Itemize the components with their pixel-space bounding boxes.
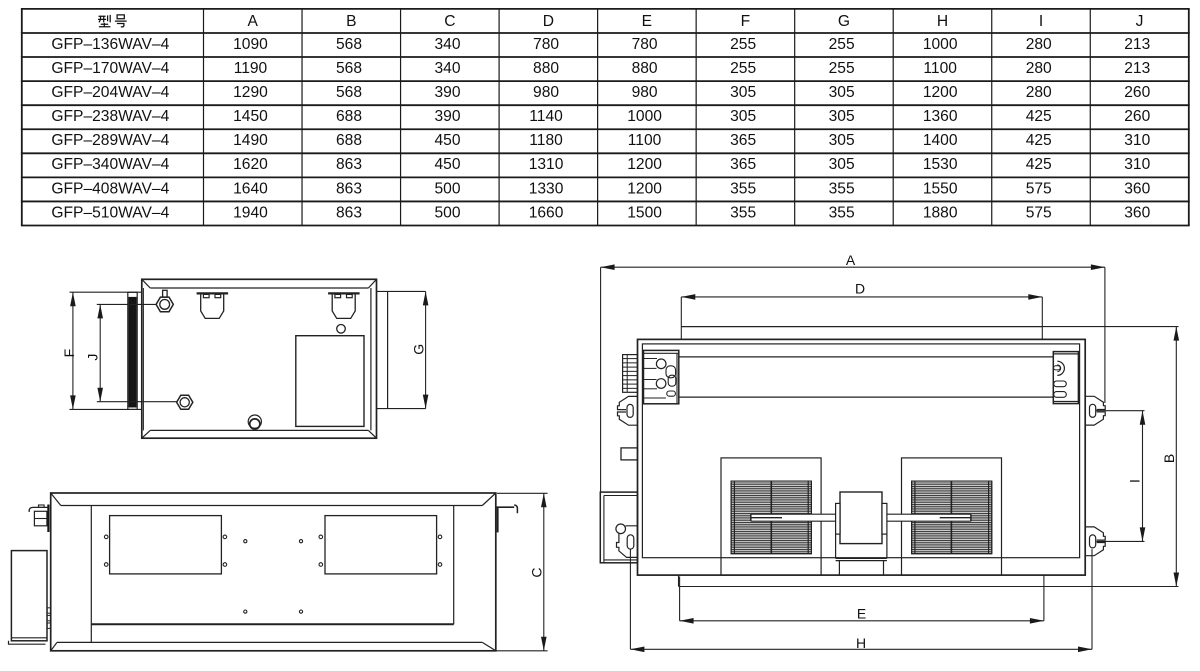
- svg-text:F: F: [61, 349, 77, 358]
- svg-text:1620: 1620: [233, 156, 268, 173]
- svg-text:H: H: [937, 13, 948, 30]
- svg-text:980: 980: [632, 84, 658, 101]
- svg-text:A: A: [846, 252, 856, 268]
- svg-text:863: 863: [336, 204, 362, 221]
- svg-text:1400: 1400: [923, 132, 958, 149]
- svg-text:280: 280: [1026, 60, 1052, 77]
- svg-text:G: G: [411, 344, 427, 355]
- svg-text:J: J: [84, 354, 100, 361]
- svg-text:575: 575: [1026, 204, 1052, 221]
- svg-text:1330: 1330: [529, 180, 564, 197]
- svg-text:1180: 1180: [529, 132, 563, 149]
- svg-text:B: B: [346, 13, 356, 30]
- svg-text:I: I: [1039, 13, 1043, 30]
- svg-text:1550: 1550: [923, 180, 958, 197]
- svg-text:1190: 1190: [234, 60, 268, 77]
- svg-text:1200: 1200: [627, 180, 662, 197]
- svg-text:J: J: [1136, 13, 1144, 30]
- svg-text:I: I: [1127, 479, 1143, 483]
- svg-text:E: E: [857, 606, 866, 622]
- svg-text:GFP–204WAV–4: GFP–204WAV–4: [51, 84, 169, 101]
- svg-text:260: 260: [1124, 84, 1150, 101]
- svg-text:305: 305: [730, 84, 756, 101]
- svg-text:1200: 1200: [627, 156, 662, 173]
- svg-text:280: 280: [1026, 36, 1052, 53]
- svg-text:568: 568: [336, 36, 362, 53]
- svg-text:688: 688: [336, 108, 362, 125]
- svg-text:1450: 1450: [233, 108, 268, 125]
- svg-text:980: 980: [533, 84, 559, 101]
- svg-text:568: 568: [336, 60, 362, 77]
- svg-text:A: A: [248, 13, 259, 30]
- svg-text:213: 213: [1124, 60, 1150, 77]
- svg-text:863: 863: [336, 156, 362, 173]
- svg-text:425: 425: [1026, 132, 1052, 149]
- svg-text:1100: 1100: [923, 60, 957, 77]
- svg-text:305: 305: [829, 108, 855, 125]
- svg-text:1640: 1640: [233, 180, 268, 197]
- svg-text:1200: 1200: [923, 84, 958, 101]
- svg-text:450: 450: [435, 132, 461, 149]
- svg-text:1310: 1310: [529, 156, 564, 173]
- svg-text:305: 305: [829, 132, 855, 149]
- svg-text:1000: 1000: [627, 108, 662, 125]
- svg-text:305: 305: [730, 108, 756, 125]
- svg-text:340: 340: [435, 36, 461, 53]
- svg-text:1290: 1290: [233, 84, 268, 101]
- svg-text:F: F: [741, 13, 751, 30]
- svg-text:305: 305: [829, 156, 855, 173]
- svg-text:305: 305: [829, 84, 855, 101]
- svg-text:575: 575: [1026, 180, 1052, 197]
- svg-text:355: 355: [829, 204, 855, 221]
- svg-text:425: 425: [1026, 156, 1052, 173]
- svg-text:1140: 1140: [529, 108, 563, 125]
- svg-text:H: H: [856, 635, 866, 651]
- svg-text:688: 688: [336, 132, 362, 149]
- svg-text:365: 365: [730, 132, 756, 149]
- svg-text:GFP–170WAV–4: GFP–170WAV–4: [51, 60, 169, 77]
- svg-text:213: 213: [1124, 36, 1150, 53]
- svg-text:360: 360: [1124, 204, 1150, 221]
- svg-text:390: 390: [435, 108, 461, 125]
- svg-text:880: 880: [632, 60, 658, 77]
- svg-text:780: 780: [632, 36, 658, 53]
- svg-text:360: 360: [1124, 180, 1150, 197]
- svg-text:255: 255: [730, 36, 756, 53]
- svg-text:E: E: [642, 13, 652, 30]
- svg-text:1500: 1500: [627, 204, 662, 221]
- svg-text:GFP–340WAV–4: GFP–340WAV–4: [51, 156, 169, 173]
- svg-text:280: 280: [1026, 84, 1052, 101]
- svg-text:390: 390: [435, 84, 461, 101]
- svg-text:255: 255: [829, 60, 855, 77]
- svg-text:1090: 1090: [233, 36, 268, 53]
- svg-text:260: 260: [1124, 108, 1150, 125]
- svg-text:863: 863: [336, 180, 362, 197]
- svg-text:C: C: [444, 13, 455, 30]
- svg-text:255: 255: [730, 60, 756, 77]
- svg-text:310: 310: [1124, 132, 1150, 149]
- svg-text:GFP–238WAV–4: GFP–238WAV–4: [51, 108, 169, 125]
- svg-text:1530: 1530: [923, 156, 958, 173]
- svg-text:GFP–408WAV–4: GFP–408WAV–4: [51, 180, 169, 197]
- svg-text:310: 310: [1124, 156, 1150, 173]
- svg-text:365: 365: [730, 156, 756, 173]
- svg-text:1490: 1490: [233, 132, 268, 149]
- svg-text:568: 568: [336, 84, 362, 101]
- svg-text:355: 355: [730, 180, 756, 197]
- svg-text:1880: 1880: [923, 204, 958, 221]
- svg-text:500: 500: [435, 180, 461, 197]
- svg-text:450: 450: [435, 156, 461, 173]
- svg-text:780: 780: [533, 36, 559, 53]
- svg-text:425: 425: [1026, 108, 1052, 125]
- svg-text:355: 355: [730, 204, 756, 221]
- svg-text:D: D: [543, 13, 554, 30]
- svg-text:G: G: [838, 13, 850, 30]
- svg-text:355: 355: [829, 180, 855, 197]
- svg-text:1660: 1660: [529, 204, 564, 221]
- svg-text:1940: 1940: [233, 204, 268, 221]
- svg-text:GFP–136WAV–4: GFP–136WAV–4: [51, 36, 169, 53]
- svg-text:D: D: [855, 280, 865, 296]
- svg-text:1360: 1360: [923, 108, 958, 125]
- svg-text:1100: 1100: [628, 132, 662, 149]
- svg-text:880: 880: [533, 60, 559, 77]
- svg-text:C: C: [528, 567, 544, 577]
- svg-text:GFP–510WAV–4: GFP–510WAV–4: [51, 204, 169, 221]
- svg-text:340: 340: [435, 60, 461, 77]
- svg-text:B: B: [1161, 454, 1177, 463]
- svg-text:1000: 1000: [923, 36, 958, 53]
- svg-text:255: 255: [829, 36, 855, 53]
- svg-text:500: 500: [435, 204, 461, 221]
- svg-text:GFP–289WAV–4: GFP–289WAV–4: [51, 132, 169, 149]
